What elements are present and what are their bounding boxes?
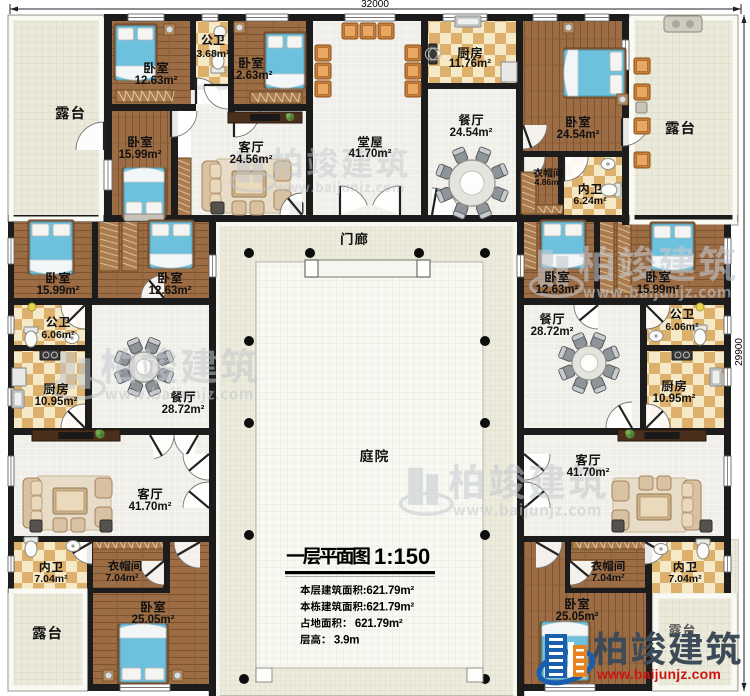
svg-text:6.06m²: 6.06m² [665,321,699,333]
svg-text:10.95m²: 10.95m² [35,396,78,408]
svg-text:7.04m²: 7.04m² [34,573,68,585]
svg-text:1:150: 1:150 [374,544,430,569]
svg-text:621.79m²: 621.79m² [366,602,414,614]
svg-text:3.68m²: 3.68m² [196,48,230,60]
svg-text:11.76m²: 11.76m² [449,58,491,70]
svg-text:10.95m²: 10.95m² [653,393,696,405]
svg-text:6.06m²: 6.06m² [41,329,75,341]
svg-text:24.54m²: 24.54m² [557,129,600,141]
svg-text:12.63m²: 12.63m² [230,70,273,82]
svg-text:12.63m²: 12.63m² [135,75,178,87]
svg-text:4.86m²: 4.86m² [535,177,562,187]
svg-text:15.99m²: 15.99m² [119,149,162,161]
svg-text:7.04m²: 7.04m² [591,572,625,584]
svg-text:3.9m: 3.9m [334,635,359,647]
svg-text:25.05m²: 25.05m² [556,611,599,623]
svg-text:28.72m²: 28.72m² [162,404,205,416]
svg-text:28.72m²: 28.72m² [531,326,574,338]
svg-text:www.baijunjz.com: www.baijunjz.com [596,666,721,682]
svg-text:41.70m²: 41.70m² [129,501,172,513]
svg-text:41.70m²: 41.70m² [349,148,392,160]
svg-text:12.63m²: 12.63m² [149,285,192,297]
svg-text:7.04m²: 7.04m² [668,573,702,585]
svg-text:24.56m²: 24.56m² [230,154,273,166]
svg-text:25.05m²: 25.05m² [132,614,175,626]
svg-text:32000: 32000 [361,0,389,10]
svg-text:12.63m²: 12.63m² [536,284,579,296]
svg-text:621.79m²: 621.79m² [355,618,403,630]
svg-text:29900: 29900 [734,338,745,366]
svg-text:7.04m²: 7.04m² [105,572,139,584]
svg-text:15.99m²: 15.99m² [37,285,80,297]
svg-text:621.79m²: 621.79m² [366,585,414,597]
svg-text:6.24m²: 6.24m² [573,195,607,207]
svg-text:41.70m²: 41.70m² [567,467,610,479]
svg-text:24.54m²: 24.54m² [450,127,493,139]
svg-text:15.99m²: 15.99m² [637,284,680,296]
